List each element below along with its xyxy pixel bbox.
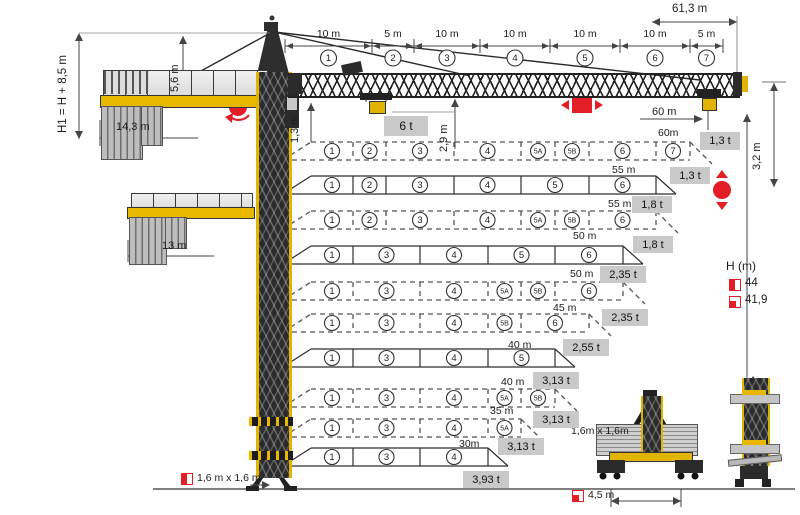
jib-segment-dimension-layer: 1234567: [285, 39, 723, 66]
svg-text:3: 3: [384, 286, 389, 297]
svg-text:2: 2: [367, 215, 372, 226]
jib-segment-dim: 10 m: [425, 29, 469, 40]
base-width-dimension: 4,5 m: [588, 490, 614, 501]
svg-text:3: 3: [444, 53, 449, 64]
row-segment-numbers: 13456: [325, 248, 597, 263]
svg-text:3: 3: [384, 353, 389, 364]
row-length-label: 45 m: [553, 303, 576, 314]
mast-collar: [249, 451, 293, 460]
hook-block: [369, 101, 386, 114]
svg-text:5B: 5B: [500, 321, 509, 328]
height-value: 44: [745, 278, 758, 290]
svg-text:5: 5: [582, 53, 587, 64]
transport-plate: [730, 444, 780, 454]
svg-text:5A: 5A: [534, 149, 543, 156]
svg-text:7: 7: [704, 53, 709, 64]
svg-text:6: 6: [586, 286, 591, 297]
svg-text:4: 4: [451, 318, 456, 329]
height-chart-title: H (m): [726, 260, 756, 272]
jib-configuration-row: [283, 448, 508, 466]
row-tip-load-badge: 1,8 t: [632, 196, 672, 213]
jib-lattice: [288, 73, 740, 98]
trolley: [360, 93, 392, 100]
transport-band: [742, 440, 766, 445]
row-tip-load-badge: 2,35 t: [600, 266, 646, 283]
svg-text:4: 4: [451, 353, 456, 364]
jib-segment-dim: 10 m: [633, 29, 677, 40]
svg-text:5: 5: [552, 180, 557, 191]
svg-text:5A: 5A: [500, 289, 509, 296]
svg-text:4: 4: [451, 452, 456, 463]
jib-segment-number: 4: [507, 50, 523, 66]
tip-trolley: [697, 89, 721, 97]
row-tip-load-badge: 3,13 t: [533, 411, 579, 428]
half-filled-square-icon: [729, 279, 741, 291]
svg-text:3: 3: [384, 250, 389, 261]
total-jib-length-dimension: 61,3 m: [672, 4, 707, 16]
jib-segment-dim: 10 m: [307, 29, 351, 40]
base-mast-section-label: 1,6m x 1,6m: [571, 426, 629, 437]
row-length-label: 50 m: [570, 269, 593, 280]
tip-hook-block: [702, 98, 717, 111]
svg-text:6: 6: [620, 146, 625, 157]
corner-filled-square-icon: [729, 296, 741, 308]
row-tip-load-badge: 1,3 t: [670, 167, 710, 184]
svg-text:4: 4: [451, 286, 456, 297]
row-segment-numbers: 1345: [325, 351, 530, 366]
svg-text:5B: 5B: [568, 149, 577, 156]
svg-text:3: 3: [384, 452, 389, 463]
svg-text:1: 1: [329, 146, 334, 157]
svg-text:1: 1: [326, 53, 331, 64]
svg-text:4: 4: [512, 53, 517, 64]
jib-segment-number: 7: [699, 50, 715, 66]
jib-segment-dim: 5 m: [685, 29, 729, 40]
trolley-travel-icon: [561, 97, 603, 113]
svg-text:5A: 5A: [500, 426, 509, 433]
svg-text:1: 1: [329, 180, 334, 191]
row-length-label: 50 m: [573, 231, 596, 242]
tip-load-badge: 1,3 t: [700, 132, 740, 150]
svg-text:4: 4: [451, 393, 456, 404]
height-value: 41,9: [745, 295, 767, 307]
tip-radius-dimension: 60 m: [652, 107, 676, 118]
svg-text:7: 7: [670, 146, 675, 157]
svg-text:5B: 5B: [534, 289, 543, 296]
transport-foot: [735, 479, 744, 487]
svg-text:3: 3: [417, 180, 422, 191]
svg-text:6: 6: [586, 250, 591, 261]
svg-text:3: 3: [384, 423, 389, 434]
tower-head-height-dimension: 5,6 m: [170, 64, 181, 92]
jib-segment-number: 2: [385, 50, 401, 66]
svg-text:3: 3: [384, 393, 389, 404]
row-segment-numbers: 12345A5B6: [325, 213, 631, 228]
svg-text:1: 1: [329, 353, 334, 364]
svg-text:5A: 5A: [534, 218, 543, 225]
mast-collar: [249, 417, 293, 426]
corner-filled-square-icon: [572, 490, 584, 502]
row-length-label: 40 m: [501, 377, 524, 388]
half-filled-square-icon: [181, 473, 193, 485]
svg-text:1: 1: [329, 215, 334, 226]
base-bogie: [675, 460, 703, 473]
svg-text:4: 4: [485, 215, 490, 226]
hook-clearance-dimension: 2,9 m: [439, 124, 450, 152]
counterweight-slabs: [101, 106, 143, 160]
svg-text:6: 6: [620, 180, 625, 191]
row-tip-load-badge: 1,8 t: [633, 236, 673, 253]
row-segment-numbers: 123456: [325, 178, 631, 193]
row-tip-load-badge: 2,35 t: [602, 309, 648, 326]
mast-head-section-dimension: 1,3 m: [290, 115, 301, 143]
jib-tip-yellow: [742, 76, 748, 92]
svg-text:2: 2: [367, 180, 372, 191]
jib-segment-dim: 5 m: [371, 29, 415, 40]
row-length-label: 30m: [459, 439, 479, 450]
svg-text:1: 1: [329, 452, 334, 463]
mast-section-label: 1,6 m x 1,6 m: [197, 473, 261, 484]
row-tip-load-badge: 3,13 t: [498, 438, 544, 455]
row-length-label: 35 m: [490, 406, 513, 417]
row-length-label: 40 m: [508, 340, 531, 351]
svg-text:5A: 5A: [500, 396, 509, 403]
row-tip-load-badge: 2,55 t: [563, 339, 609, 356]
svg-text:4: 4: [485, 146, 490, 157]
svg-text:6: 6: [552, 318, 557, 329]
jib-segment-dim: 10 m: [493, 29, 537, 40]
row-segment-numbers: 1345A5B6: [325, 284, 597, 299]
hoist-icon: [713, 170, 731, 210]
row-length-label: 60m: [658, 128, 678, 139]
svg-text:5B: 5B: [534, 396, 543, 403]
svg-text:5: 5: [519, 250, 524, 261]
row-tip-load-badge: 3,13 t: [533, 372, 579, 389]
jib-configuration-row: [283, 142, 712, 164]
jib-root: [288, 73, 302, 94]
row-segment-numbers: 134: [325, 450, 462, 465]
base-bogie: [597, 460, 625, 473]
cab-window: [287, 97, 297, 110]
svg-text:4: 4: [485, 180, 490, 191]
crane-spec-diagram: 1234567 12345A5B6712345612345A5B61345613…: [0, 0, 800, 515]
svg-text:2: 2: [367, 146, 372, 157]
transport-foot: [762, 479, 771, 487]
base-mast-stub: [641, 396, 663, 452]
svg-text:3: 3: [417, 215, 422, 226]
svg-text:1: 1: [329, 423, 334, 434]
row-length-label: 55 m: [608, 199, 631, 210]
svg-text:6: 6: [620, 215, 625, 226]
max-load-badge: 6 t: [384, 116, 428, 136]
jib-segment-number: 5: [577, 50, 593, 66]
svg-text:3: 3: [384, 318, 389, 329]
counterjib-length-dimension: 14,3 m: [116, 122, 150, 133]
svg-text:1: 1: [329, 393, 334, 404]
hook-height-dimension: H1 = H + 8,5 m: [58, 55, 70, 133]
short-counterjib-length-dimension: 13 m: [162, 241, 186, 252]
row-length-label: 55 m: [612, 165, 635, 176]
counterjib-railing-dense: [104, 71, 149, 94]
row-segment-numbers: 12345A5B67: [325, 144, 681, 159]
transport-plate: [730, 394, 780, 404]
jib-segment-number: 3: [439, 50, 455, 66]
row-segment-numbers: 1345B6: [325, 316, 563, 331]
svg-text:2: 2: [390, 53, 395, 64]
svg-text:1: 1: [329, 286, 334, 297]
svg-text:5B: 5B: [568, 218, 577, 225]
svg-text:4: 4: [451, 250, 456, 261]
row-segment-numbers: 1345A5B: [325, 391, 546, 406]
jib-segment-dim: 10 m: [563, 29, 607, 40]
svg-text:5: 5: [519, 353, 524, 364]
jib-segment-number: 1: [321, 50, 337, 66]
svg-text:3: 3: [417, 146, 422, 157]
svg-text:1: 1: [329, 250, 334, 261]
jib-segment-number: 6: [647, 50, 663, 66]
svg-text:1: 1: [329, 318, 334, 329]
svg-text:6: 6: [652, 53, 657, 64]
svg-text:4: 4: [451, 423, 456, 434]
tip-hook-band-dimension: 3,2 m: [752, 142, 763, 170]
row-tip-load-badge: 3,93 t: [463, 471, 509, 488]
transport-bogie: [740, 466, 768, 479]
jib-tip-post: [733, 72, 742, 96]
transport-band: [742, 390, 766, 395]
